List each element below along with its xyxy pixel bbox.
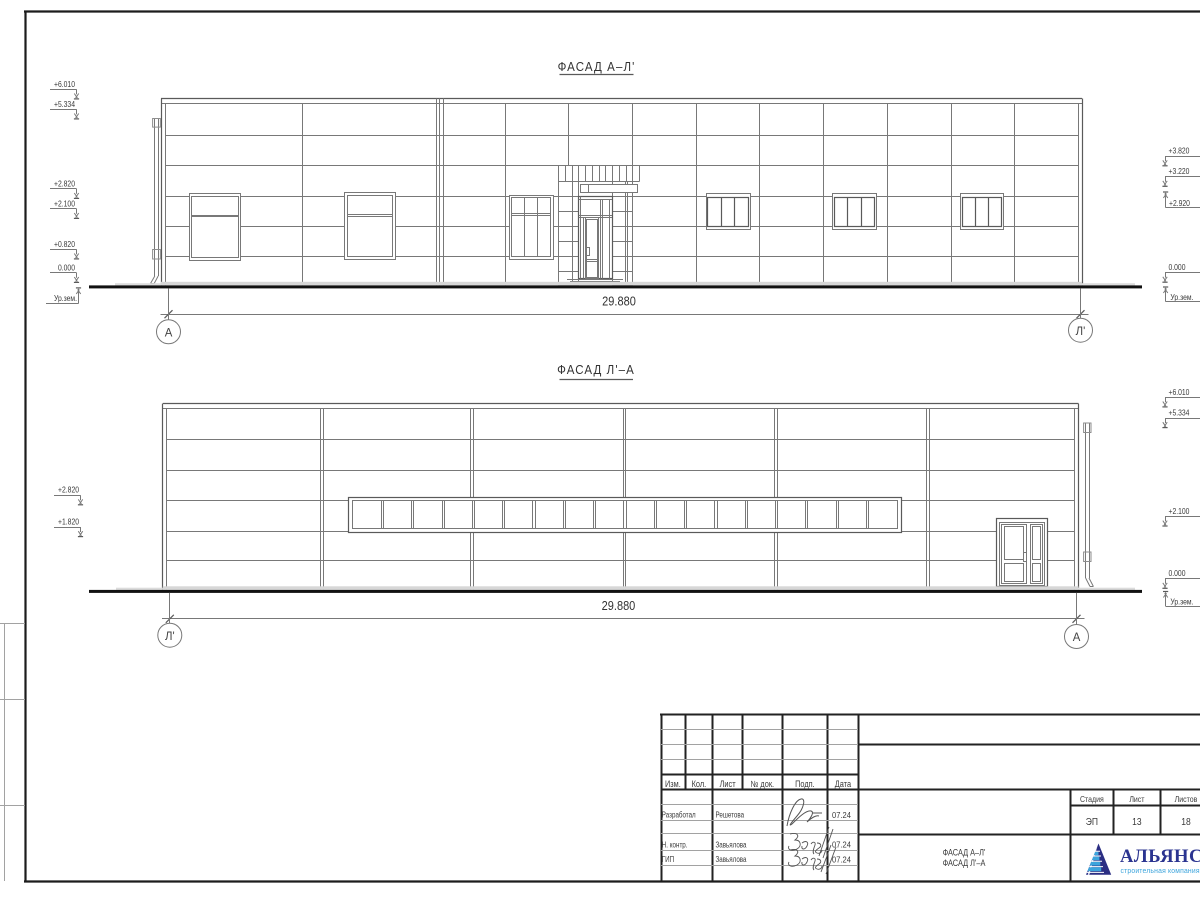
svg-text:ФАСАД Л'–А: ФАСАД Л'–А bbox=[557, 363, 635, 378]
svg-text:+1.820: +1.820 bbox=[58, 517, 79, 527]
svg-text:ФАСАД А–Л': ФАСАД А–Л' bbox=[558, 60, 636, 75]
svg-text:АЛЬЯНС: АЛЬЯНС bbox=[1120, 846, 1200, 867]
svg-text:Дата: Дата bbox=[835, 779, 852, 789]
svg-text:+5.334: +5.334 bbox=[54, 99, 76, 109]
svg-text:Ур.зем.: Ур.зем. bbox=[1170, 597, 1193, 607]
svg-text:Лист: Лист bbox=[1129, 794, 1145, 804]
svg-text:+3.820: +3.820 bbox=[1168, 146, 1189, 156]
svg-text:0.000: 0.000 bbox=[58, 263, 75, 273]
svg-text:Н. контр.: Н. контр. bbox=[662, 842, 688, 850]
svg-text:+2.100: +2.100 bbox=[54, 199, 75, 209]
svg-text:29.880: 29.880 bbox=[602, 600, 636, 614]
svg-text:Подп.: Подп. bbox=[795, 779, 815, 789]
svg-text:Ур.зем.: Ур.зем. bbox=[1170, 292, 1193, 302]
svg-text:Завьялова: Завьялова bbox=[716, 842, 747, 850]
svg-text:+2.820: +2.820 bbox=[54, 179, 75, 189]
svg-text:Кол.: Кол. bbox=[692, 779, 707, 789]
svg-text:Ур.зем.: Ур.зем. bbox=[54, 293, 77, 303]
svg-text:29.880: 29.880 bbox=[602, 295, 636, 309]
svg-text:А: А bbox=[165, 326, 173, 339]
svg-text:Стадия: Стадия bbox=[1080, 794, 1104, 804]
svg-text:Разработал: Разработал bbox=[662, 811, 696, 820]
svg-text:Завьялова: Завьялова bbox=[716, 856, 747, 864]
svg-text:ФАСАД Л'–А: ФАСАД Л'–А bbox=[943, 858, 986, 868]
svg-text:ГИП: ГИП bbox=[662, 856, 674, 864]
svg-text:+2.100: +2.100 bbox=[1168, 506, 1189, 516]
svg-text:07.24: 07.24 bbox=[832, 840, 851, 850]
svg-text:0.000: 0.000 bbox=[1168, 568, 1185, 578]
svg-text:Изм.: Изм. bbox=[665, 779, 681, 789]
svg-text:+2.920: +2.920 bbox=[1169, 198, 1190, 208]
svg-text:13: 13 bbox=[1132, 816, 1141, 827]
svg-text:07.24: 07.24 bbox=[832, 810, 851, 820]
svg-text:ЭП: ЭП bbox=[1086, 816, 1098, 827]
svg-text:+3.220: +3.220 bbox=[1168, 166, 1189, 176]
svg-text:+0.820: +0.820 bbox=[54, 239, 75, 249]
svg-text:Л': Л' bbox=[165, 630, 175, 643]
svg-text:строительная компания: строительная компания bbox=[1120, 867, 1199, 875]
svg-text:+5.334: +5.334 bbox=[1168, 408, 1190, 418]
svg-text:Листов: Листов bbox=[1175, 794, 1198, 804]
svg-text:Л': Л' bbox=[1076, 325, 1086, 338]
svg-text:+6.010: +6.010 bbox=[54, 79, 75, 89]
svg-text:№ док.: № док. bbox=[750, 779, 774, 789]
svg-text:+6.010: +6.010 bbox=[1168, 387, 1189, 397]
svg-text:Лист: Лист bbox=[720, 779, 736, 789]
svg-text:0.000: 0.000 bbox=[1168, 262, 1185, 272]
svg-text:Решетова: Решетова bbox=[716, 812, 745, 820]
svg-text:07.24: 07.24 bbox=[832, 855, 851, 865]
svg-text:ФАСАД А–Л': ФАСАД А–Л' bbox=[943, 848, 986, 858]
svg-text:18: 18 bbox=[1181, 816, 1190, 827]
svg-text:+2.820: +2.820 bbox=[58, 485, 79, 495]
svg-text:А: А bbox=[1073, 631, 1081, 644]
